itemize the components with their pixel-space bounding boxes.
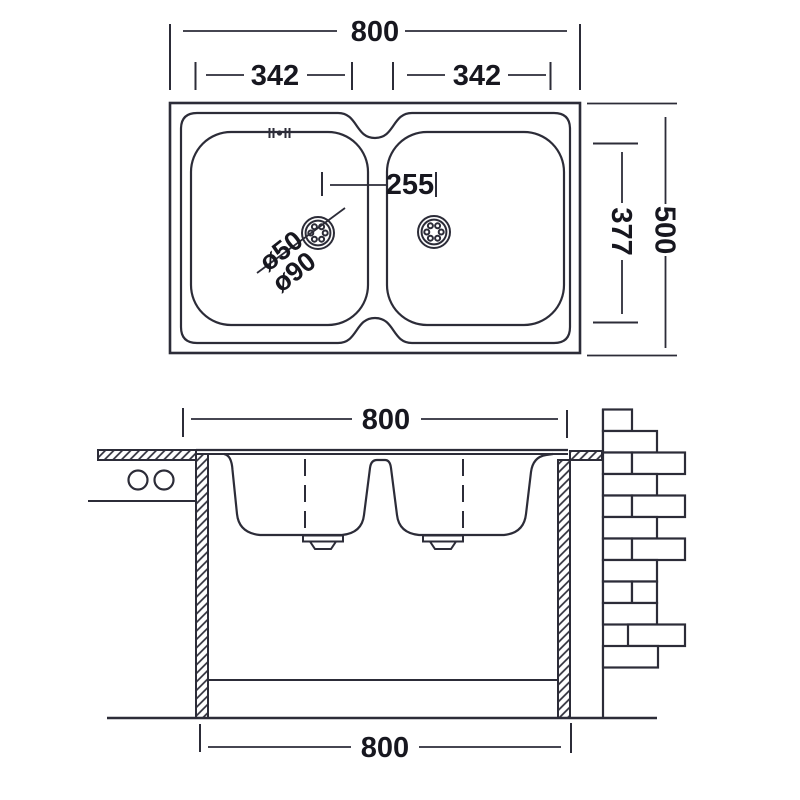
faucet-hole-icon xyxy=(270,128,290,138)
brick xyxy=(603,560,657,582)
brick xyxy=(603,582,632,604)
right-countertop-section xyxy=(570,451,602,460)
label-overall-depth: 500 xyxy=(649,206,681,254)
brick xyxy=(603,431,657,453)
left-drain-fitting xyxy=(303,536,343,550)
label-right-bowl-width: 342 xyxy=(453,60,501,92)
brick xyxy=(603,474,657,496)
brick xyxy=(632,496,685,518)
brick xyxy=(632,539,685,561)
right-knob xyxy=(155,471,174,490)
sink-technical-drawing-page: 800 342 342 255 ø50 ø90 500 377 xyxy=(0,0,800,800)
sink-outline xyxy=(170,103,580,353)
brick xyxy=(603,410,632,432)
brick xyxy=(628,625,685,647)
brick xyxy=(603,539,632,561)
right-drain-fitting xyxy=(423,536,463,550)
brick xyxy=(632,453,685,475)
brick xyxy=(632,582,657,604)
right-bowl xyxy=(387,132,564,325)
sink-technical-drawing: 800 342 342 255 ø50 ø90 500 377 xyxy=(0,0,800,800)
brick xyxy=(603,496,632,518)
brick xyxy=(603,453,632,475)
label-front-base-width: 800 xyxy=(361,732,409,764)
label-drain-offset: 255 xyxy=(386,169,434,201)
label-bowl-depth: 377 xyxy=(605,207,637,255)
brick-wall xyxy=(603,409,685,718)
right-drain xyxy=(418,216,450,248)
left-drain xyxy=(302,217,334,249)
left-knob xyxy=(129,471,148,490)
sink-rim xyxy=(181,113,570,343)
label-overall-width: 800 xyxy=(351,16,399,48)
label-left-bowl-width: 342 xyxy=(251,60,299,92)
brick xyxy=(603,646,658,668)
brick xyxy=(603,603,657,625)
brick xyxy=(603,517,657,539)
left-countertop-section xyxy=(98,450,196,460)
label-front-overall-width: 800 xyxy=(362,404,410,436)
cabinet-left-wall xyxy=(196,454,208,718)
bowls-profile xyxy=(224,454,553,535)
front-view xyxy=(88,408,685,753)
cabinet-right-wall xyxy=(558,460,570,718)
left-bowl xyxy=(191,132,368,325)
